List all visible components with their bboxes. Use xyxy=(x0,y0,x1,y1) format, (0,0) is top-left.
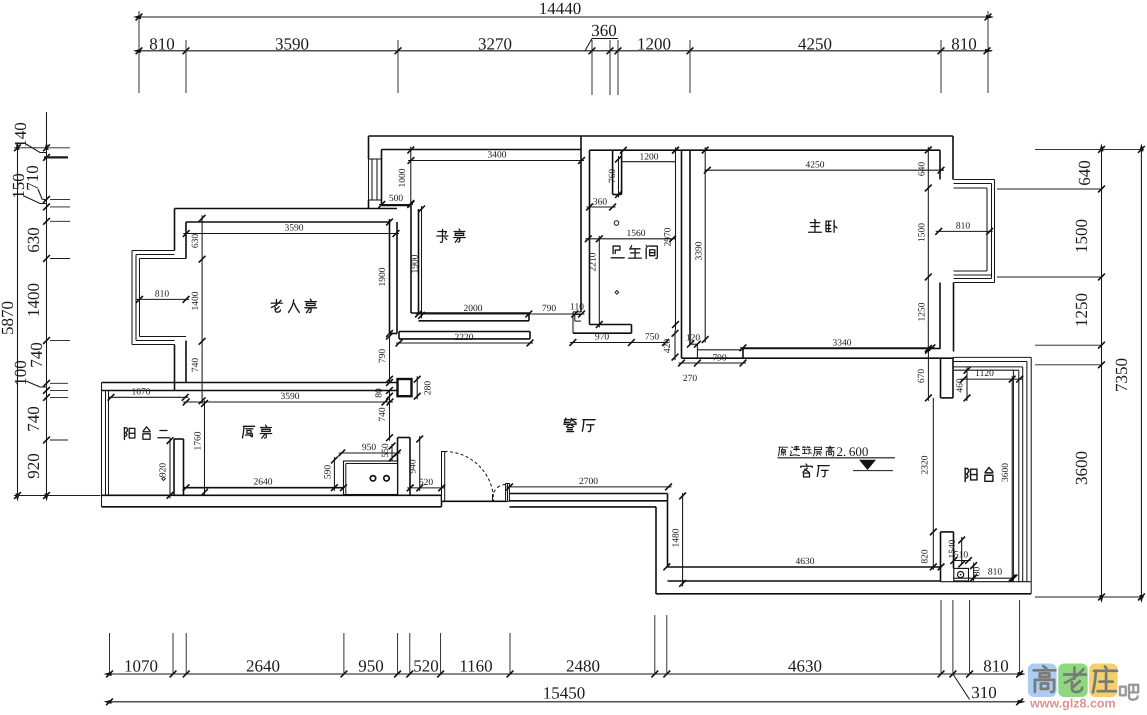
svg-text:920: 920 xyxy=(159,463,169,478)
svg-text:3270: 3270 xyxy=(478,34,512,53)
svg-text:1200: 1200 xyxy=(637,34,671,53)
svg-text:810: 810 xyxy=(951,34,977,53)
svg-text:2210: 2210 xyxy=(589,252,599,271)
svg-text:740: 740 xyxy=(24,406,43,432)
svg-text:1250: 1250 xyxy=(918,302,928,321)
svg-text:2. 600: 2. 600 xyxy=(837,444,869,459)
svg-text:760: 760 xyxy=(608,169,618,184)
svg-text:810: 810 xyxy=(983,657,1009,676)
svg-text:1540: 1540 xyxy=(948,539,958,558)
svg-text:2220: 2220 xyxy=(455,333,474,343)
svg-text:970: 970 xyxy=(595,333,610,343)
svg-text:740: 740 xyxy=(191,358,201,373)
svg-text:1250: 1250 xyxy=(1072,293,1091,327)
svg-text:3590: 3590 xyxy=(275,34,309,53)
svg-text:670: 670 xyxy=(917,369,927,384)
svg-text:550: 550 xyxy=(381,443,391,458)
svg-text:940: 940 xyxy=(409,459,419,474)
svg-text:310: 310 xyxy=(971,683,997,702)
svg-text:80: 80 xyxy=(375,388,385,398)
svg-text:1160: 1160 xyxy=(459,657,492,676)
svg-text:270: 270 xyxy=(683,374,698,384)
svg-text:810: 810 xyxy=(149,34,175,53)
svg-text:500: 500 xyxy=(389,194,404,204)
svg-text:1120: 1120 xyxy=(975,369,994,379)
svg-text:630: 630 xyxy=(24,227,43,253)
svg-text:790: 790 xyxy=(542,304,557,314)
svg-text:810: 810 xyxy=(988,568,1003,578)
svg-text:920: 920 xyxy=(24,453,43,479)
svg-text:120: 120 xyxy=(686,334,701,344)
svg-text:810: 810 xyxy=(956,222,971,232)
svg-text:3590: 3590 xyxy=(285,224,304,234)
svg-text:3340: 3340 xyxy=(833,338,852,348)
svg-text:2320: 2320 xyxy=(921,455,931,474)
svg-text:2700: 2700 xyxy=(579,477,598,487)
svg-text:1760: 1760 xyxy=(194,431,204,450)
svg-text:1200: 1200 xyxy=(640,152,659,162)
svg-text:1070: 1070 xyxy=(132,387,151,397)
svg-text:750: 750 xyxy=(645,333,660,343)
svg-text:2640: 2640 xyxy=(254,478,273,488)
svg-text:950: 950 xyxy=(362,443,377,453)
svg-text:1900: 1900 xyxy=(378,267,388,286)
svg-text:110: 110 xyxy=(570,303,584,313)
svg-text:3590: 3590 xyxy=(281,392,300,402)
svg-text:1500: 1500 xyxy=(1072,219,1091,253)
svg-text:4630: 4630 xyxy=(788,657,822,676)
svg-text:1070: 1070 xyxy=(124,657,158,676)
svg-text:140: 140 xyxy=(11,122,30,148)
svg-text:1000: 1000 xyxy=(398,168,408,187)
svg-text:420: 420 xyxy=(663,339,673,354)
svg-text:460: 460 xyxy=(956,378,966,393)
svg-text:820: 820 xyxy=(921,549,931,564)
svg-text:360: 360 xyxy=(591,21,617,40)
svg-text:1400: 1400 xyxy=(191,291,201,310)
svg-text:14440: 14440 xyxy=(539,0,582,18)
svg-text:1480: 1480 xyxy=(672,528,682,547)
svg-text:4250: 4250 xyxy=(806,160,825,170)
svg-text:3600: 3600 xyxy=(1072,451,1091,485)
svg-text:1560: 1560 xyxy=(627,229,646,239)
svg-text:2640: 2640 xyxy=(246,657,280,676)
svg-text:4250: 4250 xyxy=(798,34,832,53)
svg-text:640: 640 xyxy=(918,162,928,177)
svg-text:710: 710 xyxy=(23,165,42,191)
svg-text:630: 630 xyxy=(191,234,201,249)
svg-text:5870: 5870 xyxy=(0,301,17,335)
svg-text:www.glz8.com: www.glz8.com xyxy=(1029,697,1116,711)
svg-text:1900: 1900 xyxy=(411,254,421,273)
svg-text:810: 810 xyxy=(155,290,170,300)
svg-text:1400: 1400 xyxy=(24,283,43,317)
svg-text:3600: 3600 xyxy=(1001,463,1011,482)
svg-text:4630: 4630 xyxy=(796,557,815,567)
svg-text:3400: 3400 xyxy=(488,151,507,161)
svg-text:7350: 7350 xyxy=(1112,358,1131,392)
svg-text:15450: 15450 xyxy=(543,684,586,703)
svg-text:520: 520 xyxy=(413,657,439,676)
svg-text:640: 640 xyxy=(1075,160,1094,186)
svg-text:360: 360 xyxy=(593,198,608,208)
svg-text:1500: 1500 xyxy=(918,223,928,242)
svg-text:790: 790 xyxy=(712,354,727,364)
svg-text:3390: 3390 xyxy=(695,241,705,260)
svg-text:2480: 2480 xyxy=(566,657,600,676)
svg-text:950: 950 xyxy=(358,657,384,676)
svg-text:2000: 2000 xyxy=(464,304,483,314)
svg-text:790: 790 xyxy=(378,349,388,364)
svg-text:590: 590 xyxy=(324,465,334,480)
svg-text:280: 280 xyxy=(424,381,434,396)
svg-text:740: 740 xyxy=(378,407,388,422)
svg-text:80: 80 xyxy=(973,567,983,577)
svg-text:2970: 2970 xyxy=(664,227,674,246)
